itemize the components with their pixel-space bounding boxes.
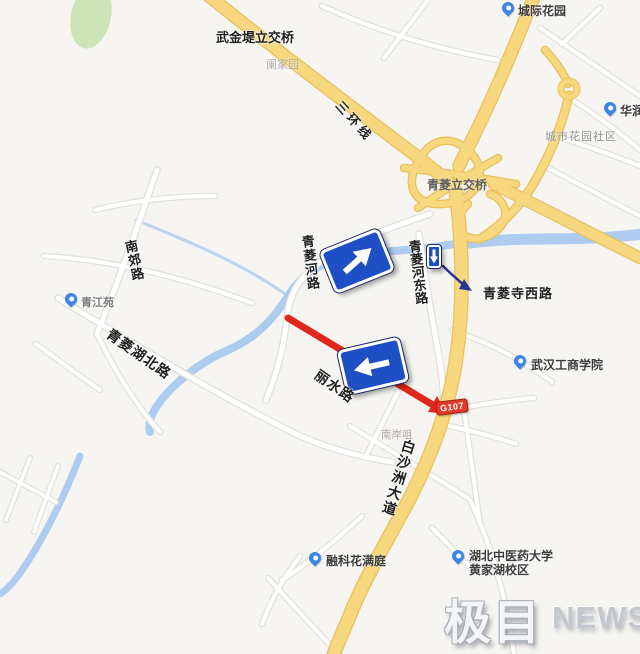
qingling-lake	[72, 423, 291, 654]
poi-label-hubei-university-line2: 黄家湖校区	[469, 561, 529, 578]
green-island	[65, 0, 118, 52]
map-canvas[interactable]: G107 城际花园 华润 武汉工商学院 青江苑 融科花满庭 湖北中医药大学 黄家…	[0, 0, 640, 654]
down-sign-arrow-icon	[429, 248, 439, 265]
label-qingling-interchange: 青菱立交桥	[427, 176, 487, 193]
poi-label-chengji-garden: 城际花园	[518, 2, 566, 19]
small-stream	[136, 220, 288, 296]
label-lanjiayuan: 阑家园	[266, 56, 299, 72]
left-sign-arrow-icon	[347, 346, 399, 386]
poi-label-wuhan-business-college: 武汉工商学院	[531, 356, 603, 373]
poi-label-rongke: 融科花满庭	[326, 552, 386, 569]
watermark-brand-en: NEWS	[552, 600, 640, 636]
label-wujindi-interchange: 武金堤立交桥	[216, 27, 294, 46]
label-qinglingsi-west-road: 青菱寺西路	[483, 283, 553, 302]
poi-label-huarun: 华润	[620, 102, 640, 119]
watermark-brand-cn: 极目	[444, 584, 542, 653]
label-chengshi-garden-community: 城市花园社区	[545, 128, 617, 144]
poi-label-qingjiangyuan: 青江苑	[81, 294, 114, 310]
down-arrow-sign	[427, 245, 441, 268]
